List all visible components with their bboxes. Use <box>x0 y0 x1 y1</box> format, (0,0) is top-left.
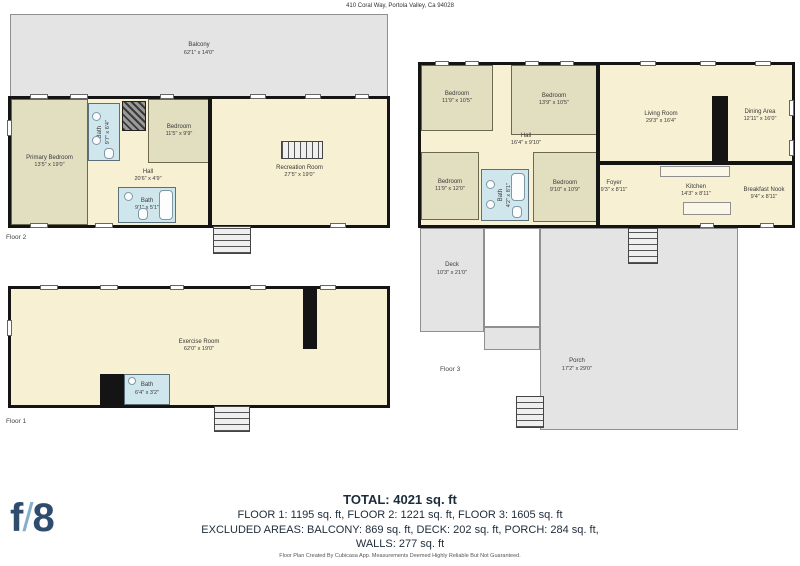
window <box>250 285 266 290</box>
room-dims: 27'5" x 19'0" <box>284 172 314 179</box>
room-name: Bath <box>141 382 153 390</box>
window <box>755 61 771 66</box>
room-name: Hall <box>143 169 153 177</box>
room-dims: 13'9" x 10'5" <box>539 100 569 107</box>
summary-total: TOTAL: 4021 sq. ft <box>0 492 800 508</box>
summary-floors: FLOOR 1: 1195 sq. ft, FLOOR 2: 1221 sq. … <box>0 508 800 522</box>
room-name: Bedroom <box>438 179 462 187</box>
bathtub-icon <box>511 173 525 201</box>
window <box>525 61 539 66</box>
stairs-icon <box>213 226 251 254</box>
window <box>40 285 58 290</box>
room-name: Hall <box>521 133 531 141</box>
window <box>435 61 449 66</box>
room-dims: 9'3" x 8'11" <box>601 187 628 194</box>
kitchen-counter <box>660 166 730 177</box>
room-bedroom: Bedroom 13'9" x 10'5" <box>511 65 597 135</box>
window <box>7 120 12 136</box>
room-foyer-label: Foyer 9'3" x 8'11" <box>596 178 632 196</box>
window <box>789 100 794 116</box>
credit-line: Floor Plan Created By Cubicasa App. Meas… <box>0 553 800 559</box>
window <box>30 223 48 228</box>
porch-label: Porch 17'2" x 29'0" <box>545 358 609 372</box>
room-dims: 29'3" x 16'4" <box>646 118 676 125</box>
floorplan-page: 410 Coral Way, Portola Valley, Ca 94028 … <box>0 0 800 566</box>
interior-wall <box>600 161 792 165</box>
room-breakfast-nook-label: Breakfast Nook 9'4" x 8'11" <box>734 184 794 204</box>
room-name: Living Room <box>644 111 677 119</box>
window <box>305 94 321 99</box>
room-dining-label: Dining Area 12'11" x 16'0" <box>726 106 794 126</box>
window <box>7 320 12 336</box>
window <box>320 285 336 290</box>
sink-icon <box>92 136 101 145</box>
toilet-icon <box>138 208 148 220</box>
interior-wall <box>303 289 317 349</box>
room-name: Kitchen <box>686 184 706 192</box>
room-dims: 62'1" x 14'0" <box>184 50 214 57</box>
toilet-icon <box>104 148 114 159</box>
room-living-label: Living Room 29'3" x 16'4" <box>626 108 696 128</box>
logo-slash: / <box>22 496 32 540</box>
room-recreation-label: Recreation Room 27'5" x 19'0" <box>212 162 387 182</box>
deck-label: Deck 10'3" x 21'0" <box>420 262 484 276</box>
room-dims: 13'5" x 19'0" <box>34 162 64 169</box>
room-exercise-label: Exercise Room 62'0" x 19'0" <box>8 336 390 356</box>
room-dims: 14'3" x 8'11" <box>681 191 711 198</box>
stairs-icon <box>214 406 250 432</box>
room-hall-label: Hall 20'6" x 4'9" <box>88 165 208 187</box>
sink-icon <box>124 192 133 201</box>
room-dims: 6'4" x 3'2" <box>135 390 159 397</box>
stairs-icon <box>281 141 323 159</box>
window <box>30 94 48 99</box>
room-name: Recreation Room <box>276 165 323 173</box>
interior-wall <box>596 65 600 225</box>
balcony-label: Balcony 62'1" x 14'0" <box>10 42 388 56</box>
room-name: Balcony <box>188 42 209 50</box>
room-bedroom: Bedroom 11'9" x 12'0" <box>421 152 479 220</box>
room-name: Bedroom <box>445 91 469 99</box>
room-dims: 17'2" x 29'0" <box>562 366 592 373</box>
room-kitchen-label: Kitchen 14'3" x 8'11" <box>666 182 726 200</box>
sink-icon <box>128 377 136 385</box>
room-dims: 11'5" x 9'9" <box>166 131 193 138</box>
room-dims: 12'11" x 16'0" <box>744 116 777 123</box>
window <box>250 94 266 99</box>
sink-icon <box>486 200 495 209</box>
window <box>355 94 369 99</box>
window <box>70 94 88 99</box>
room-name: Bedroom <box>542 93 566 101</box>
room-dims: 16'4" x 9'10" <box>511 140 541 147</box>
room-name: Dining Area <box>744 109 775 117</box>
room-dims: 20'6" x 4'9" <box>134 176 161 183</box>
sink-icon <box>92 112 101 121</box>
room-bedroom: Bedroom 11'9" x 10'5" <box>421 65 493 131</box>
room-name: Breakfast Nook <box>743 187 784 195</box>
window <box>330 223 346 228</box>
room-name: Bath <box>141 198 153 206</box>
room-name: Bedroom <box>553 180 577 188</box>
kitchen-island <box>683 202 731 215</box>
window <box>560 61 574 66</box>
room-dims: 9'10" x 10'9" <box>550 187 580 194</box>
closet <box>122 101 146 131</box>
window <box>700 61 716 66</box>
room-name: Exercise Room <box>179 339 220 347</box>
window <box>160 94 174 99</box>
room-name: Foyer <box>606 180 621 188</box>
summary-excluded: EXCLUDED AREAS: BALCONY: 869 sq. ft, DEC… <box>0 523 800 537</box>
room-bedroom: Bedroom 11'5" x 9'9" <box>148 99 210 163</box>
room-dims: 11'9" x 12'0" <box>435 186 465 193</box>
room-name: Porch <box>569 358 585 366</box>
floor3-tag: Floor 3 <box>440 366 460 373</box>
room-dims: 9'7" x 6'4" <box>104 120 111 144</box>
window <box>95 223 113 228</box>
summary-block: TOTAL: 4021 sq. ft FLOOR 1: 1195 sq. ft,… <box>0 492 800 551</box>
window <box>789 140 794 156</box>
room-name: Bath <box>498 189 506 201</box>
room-dims: 9'4" x 8'11" <box>751 194 778 201</box>
logo-f: f <box>10 496 22 540</box>
floor1-tag: Floor 1 <box>6 418 26 425</box>
f8-logo: f/8 <box>10 496 54 541</box>
window <box>465 61 479 66</box>
room-dims: 11'9" x 10'5" <box>442 98 472 105</box>
room-dims: 10'3" x 21'0" <box>437 270 467 277</box>
room-name: Primary Bedroom <box>26 155 73 163</box>
room-name: Deck <box>445 262 459 270</box>
room-bedroom: Bedroom 9'10" x 10'9" <box>533 152 597 222</box>
window <box>760 223 774 228</box>
interior-wall <box>100 374 124 405</box>
window <box>170 285 184 290</box>
deck-area <box>420 228 484 332</box>
room-dims: 62'0" x 19'0" <box>184 346 214 353</box>
room-name: Bedroom <box>167 124 191 132</box>
window <box>640 61 656 66</box>
courtyard-cutout <box>484 228 540 327</box>
window <box>100 285 118 290</box>
room-hall-label: Hall 16'4" x 9'10" <box>496 130 556 150</box>
stairs-icon <box>628 228 658 264</box>
deck-connector <box>484 327 540 350</box>
address-header: 410 Coral Way, Portola Valley, Ca 94028 <box>0 3 800 9</box>
logo-eight: 8 <box>32 496 53 540</box>
toilet-icon <box>512 206 522 218</box>
room-primary-bedroom: Primary Bedroom 13'5" x 19'0" <box>11 99 88 225</box>
floor2-tag: Floor 2 <box>6 234 26 241</box>
window <box>700 223 714 228</box>
sink-icon <box>486 180 495 189</box>
summary-walls: WALLS: 277 sq. ft <box>0 537 800 551</box>
stairs-icon <box>516 396 544 428</box>
bathtub-icon <box>159 190 173 220</box>
